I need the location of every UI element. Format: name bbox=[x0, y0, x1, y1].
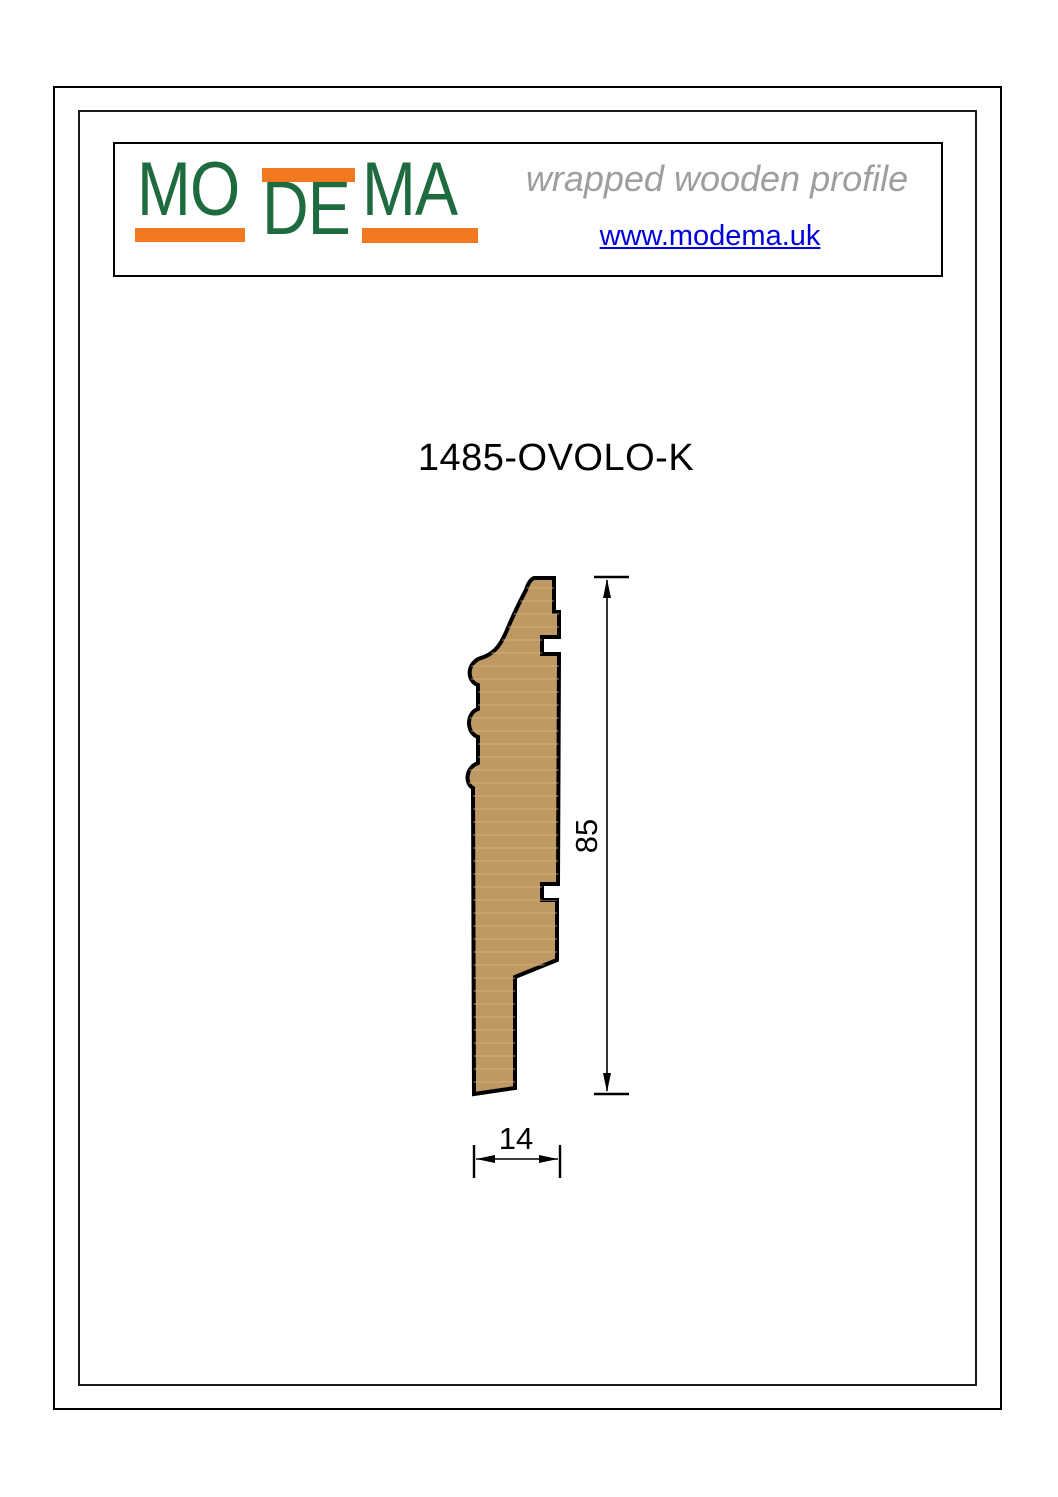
logo-underline-bar-left bbox=[135, 228, 245, 242]
width-dimension: 14 bbox=[474, 1121, 560, 1178]
arrow-right-icon bbox=[539, 1155, 558, 1163]
arrow-up-icon bbox=[603, 579, 611, 598]
product-title: 1485-OVOLO-K bbox=[356, 437, 756, 480]
height-dimension-label: 85 bbox=[569, 819, 604, 853]
width-dimension-label: 14 bbox=[499, 1121, 533, 1156]
logo-text-mo: MO bbox=[137, 152, 239, 228]
height-dimension: 85 bbox=[569, 577, 629, 1094]
logo-text-ma: MA bbox=[362, 152, 457, 228]
spec-sheet-page: MO DE MA wrapped wooden profile www.mode… bbox=[0, 0, 1058, 1497]
tagline: wrapped wooden profile bbox=[517, 159, 917, 199]
website-link-row: www.modema.uk bbox=[510, 220, 910, 253]
arrow-left-icon bbox=[476, 1155, 495, 1163]
profile-drawing: 85 14 bbox=[440, 550, 670, 1200]
logo-underline-bar-right bbox=[362, 228, 478, 243]
arrow-down-icon bbox=[603, 1073, 611, 1092]
website-link[interactable]: www.modema.uk bbox=[600, 220, 821, 252]
logo-overline-bar-middle bbox=[262, 168, 355, 182]
logo-text-de: DE bbox=[262, 171, 350, 247]
